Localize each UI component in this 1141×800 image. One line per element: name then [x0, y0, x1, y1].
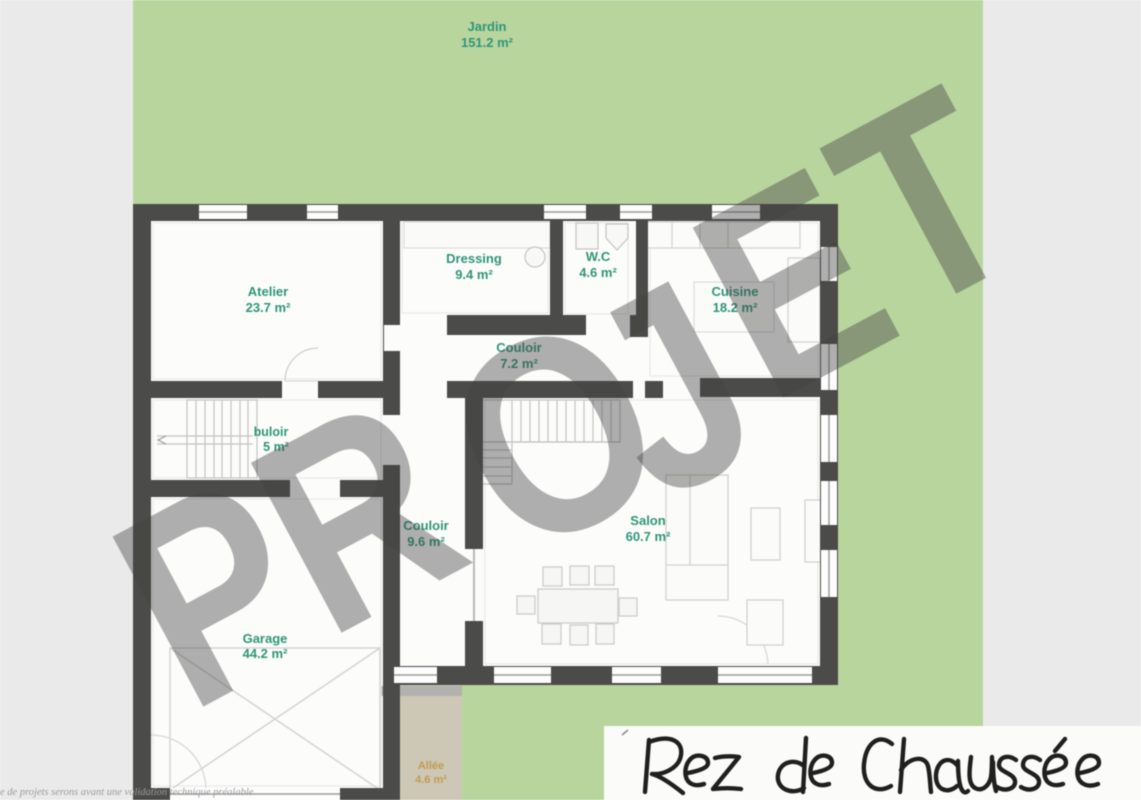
svg-text:Atelier: Atelier: [248, 284, 288, 299]
svg-text:Allée: Allée: [418, 760, 444, 772]
svg-text:Dressing: Dressing: [446, 251, 502, 266]
svg-text:23.7 m²: 23.7 m²: [246, 300, 291, 315]
svg-text:iste de projets serons avant u: iste de projets serons avant une validat…: [0, 787, 254, 798]
svg-text:Jardin: Jardin: [467, 19, 506, 34]
svg-text:4.6 m²: 4.6 m²: [415, 774, 447, 786]
svg-text:151.2 m²: 151.2 m²: [461, 35, 514, 50]
svg-text:9.4 m²: 9.4 m²: [455, 267, 493, 282]
